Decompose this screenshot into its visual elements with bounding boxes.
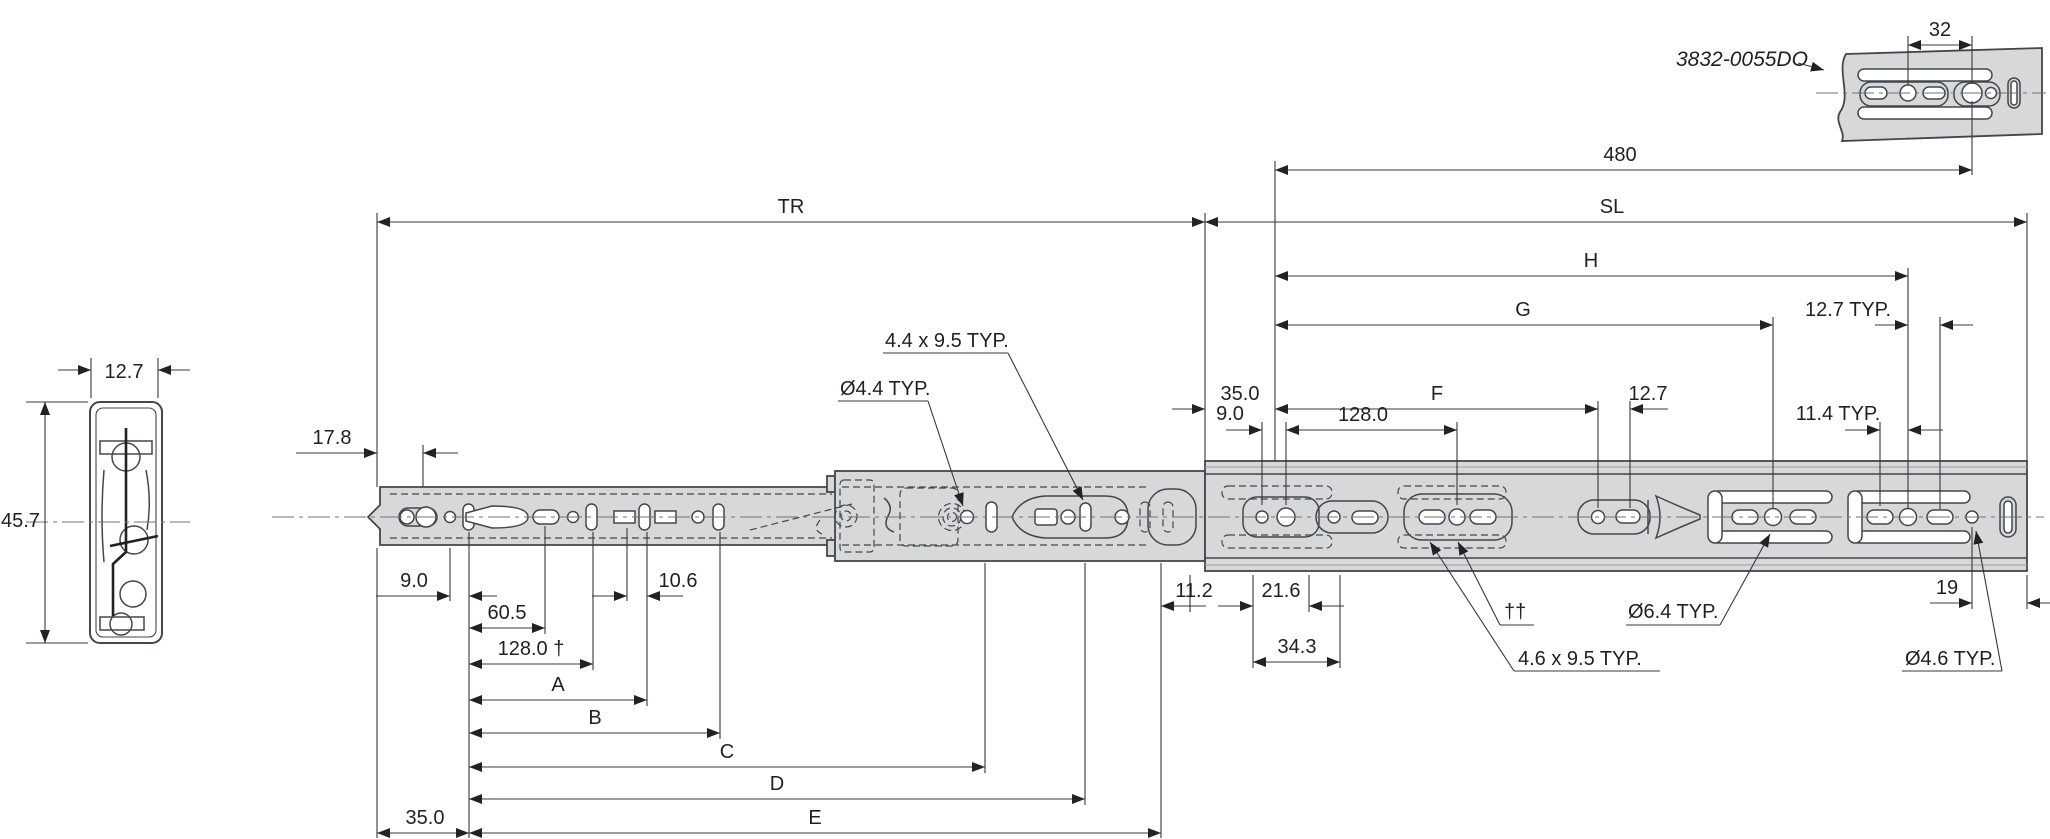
- dim-12-7-typ-label: 12.7 TYP.: [1805, 299, 1891, 321]
- dim-128-0-sl-label: 128.0: [1338, 404, 1388, 426]
- dim-21-6-label: 21.6: [1262, 580, 1301, 602]
- dim-128-0-dagger-label: 128.0 †: [498, 638, 565, 660]
- callout-daggers-label: ††: [1504, 601, 1526, 623]
- slide-dimension-drawing: 12.7 45.7 32 3832-0055DO: [0, 0, 2050, 839]
- detail-view: 32 3832-0055DO: [1676, 19, 2046, 141]
- dim-35-0-label: 35.0: [406, 807, 445, 829]
- dim-sl-label: SL: [1600, 196, 1624, 218]
- dim-11-2-label: 11.2: [1175, 580, 1212, 602]
- dim-35-0-sl-label: 35.0: [1221, 383, 1260, 405]
- main-view: [272, 461, 2044, 571]
- dim-g-label: G: [1515, 299, 1531, 321]
- dim-12-7-label: 12.7: [1629, 383, 1668, 405]
- drawing-canvas: 12.7 45.7 32 3832-0055DO: [0, 0, 2050, 839]
- dim-9-0-label: 9.0: [400, 570, 428, 592]
- dim-a-label: A: [551, 674, 565, 696]
- cross-section-view: 12.7 45.7: [1, 358, 190, 643]
- dim-b-label: B: [588, 707, 601, 729]
- dim-d-label: D: [770, 773, 784, 795]
- dim-60-5-label: 60.5: [488, 602, 527, 624]
- dim-9-0-sl-label: 9.0: [1216, 403, 1244, 425]
- callout-dia-6-4-label: Ø6.4 TYP.: [1628, 601, 1718, 623]
- part-number-label: 3832-0055DO: [1676, 48, 1808, 71]
- dim-cross-height-label: 45.7: [1, 510, 40, 532]
- callout-dia-4-6-label: Ø4.6 TYP.: [1905, 648, 1995, 670]
- dim-34-3-label: 34.3: [1278, 636, 1317, 658]
- dim-e-label: E: [808, 807, 821, 829]
- dim-32-label: 32: [1929, 19, 1951, 41]
- dim-17-8-label: 17.8: [313, 427, 352, 449]
- dim-h-label: H: [1584, 250, 1598, 272]
- dim-cross-width-label: 12.7: [105, 361, 144, 383]
- callout-dia-4-4-label: Ø4.4 TYP.: [840, 378, 930, 400]
- ball-bearing: [120, 581, 146, 607]
- callout-4-6x9-5-label: 4.6 x 9.5 TYP.: [1518, 648, 1642, 670]
- dim-10-6-label: 10.6: [659, 570, 698, 592]
- dim-c-label: C: [720, 741, 734, 763]
- callout-4-4x9-5-label: 4.4 x 9.5 TYP.: [885, 330, 1009, 352]
- dim-480-label: 480: [1603, 144, 1636, 166]
- dim-tr-label: TR: [778, 196, 805, 218]
- dim-f-label: F: [1431, 383, 1443, 405]
- dim-19-label: 19: [1936, 577, 1958, 599]
- dim-11-4-typ-label: 11.4 TYP.: [1796, 403, 1881, 425]
- cabinet-member: [1205, 461, 2027, 571]
